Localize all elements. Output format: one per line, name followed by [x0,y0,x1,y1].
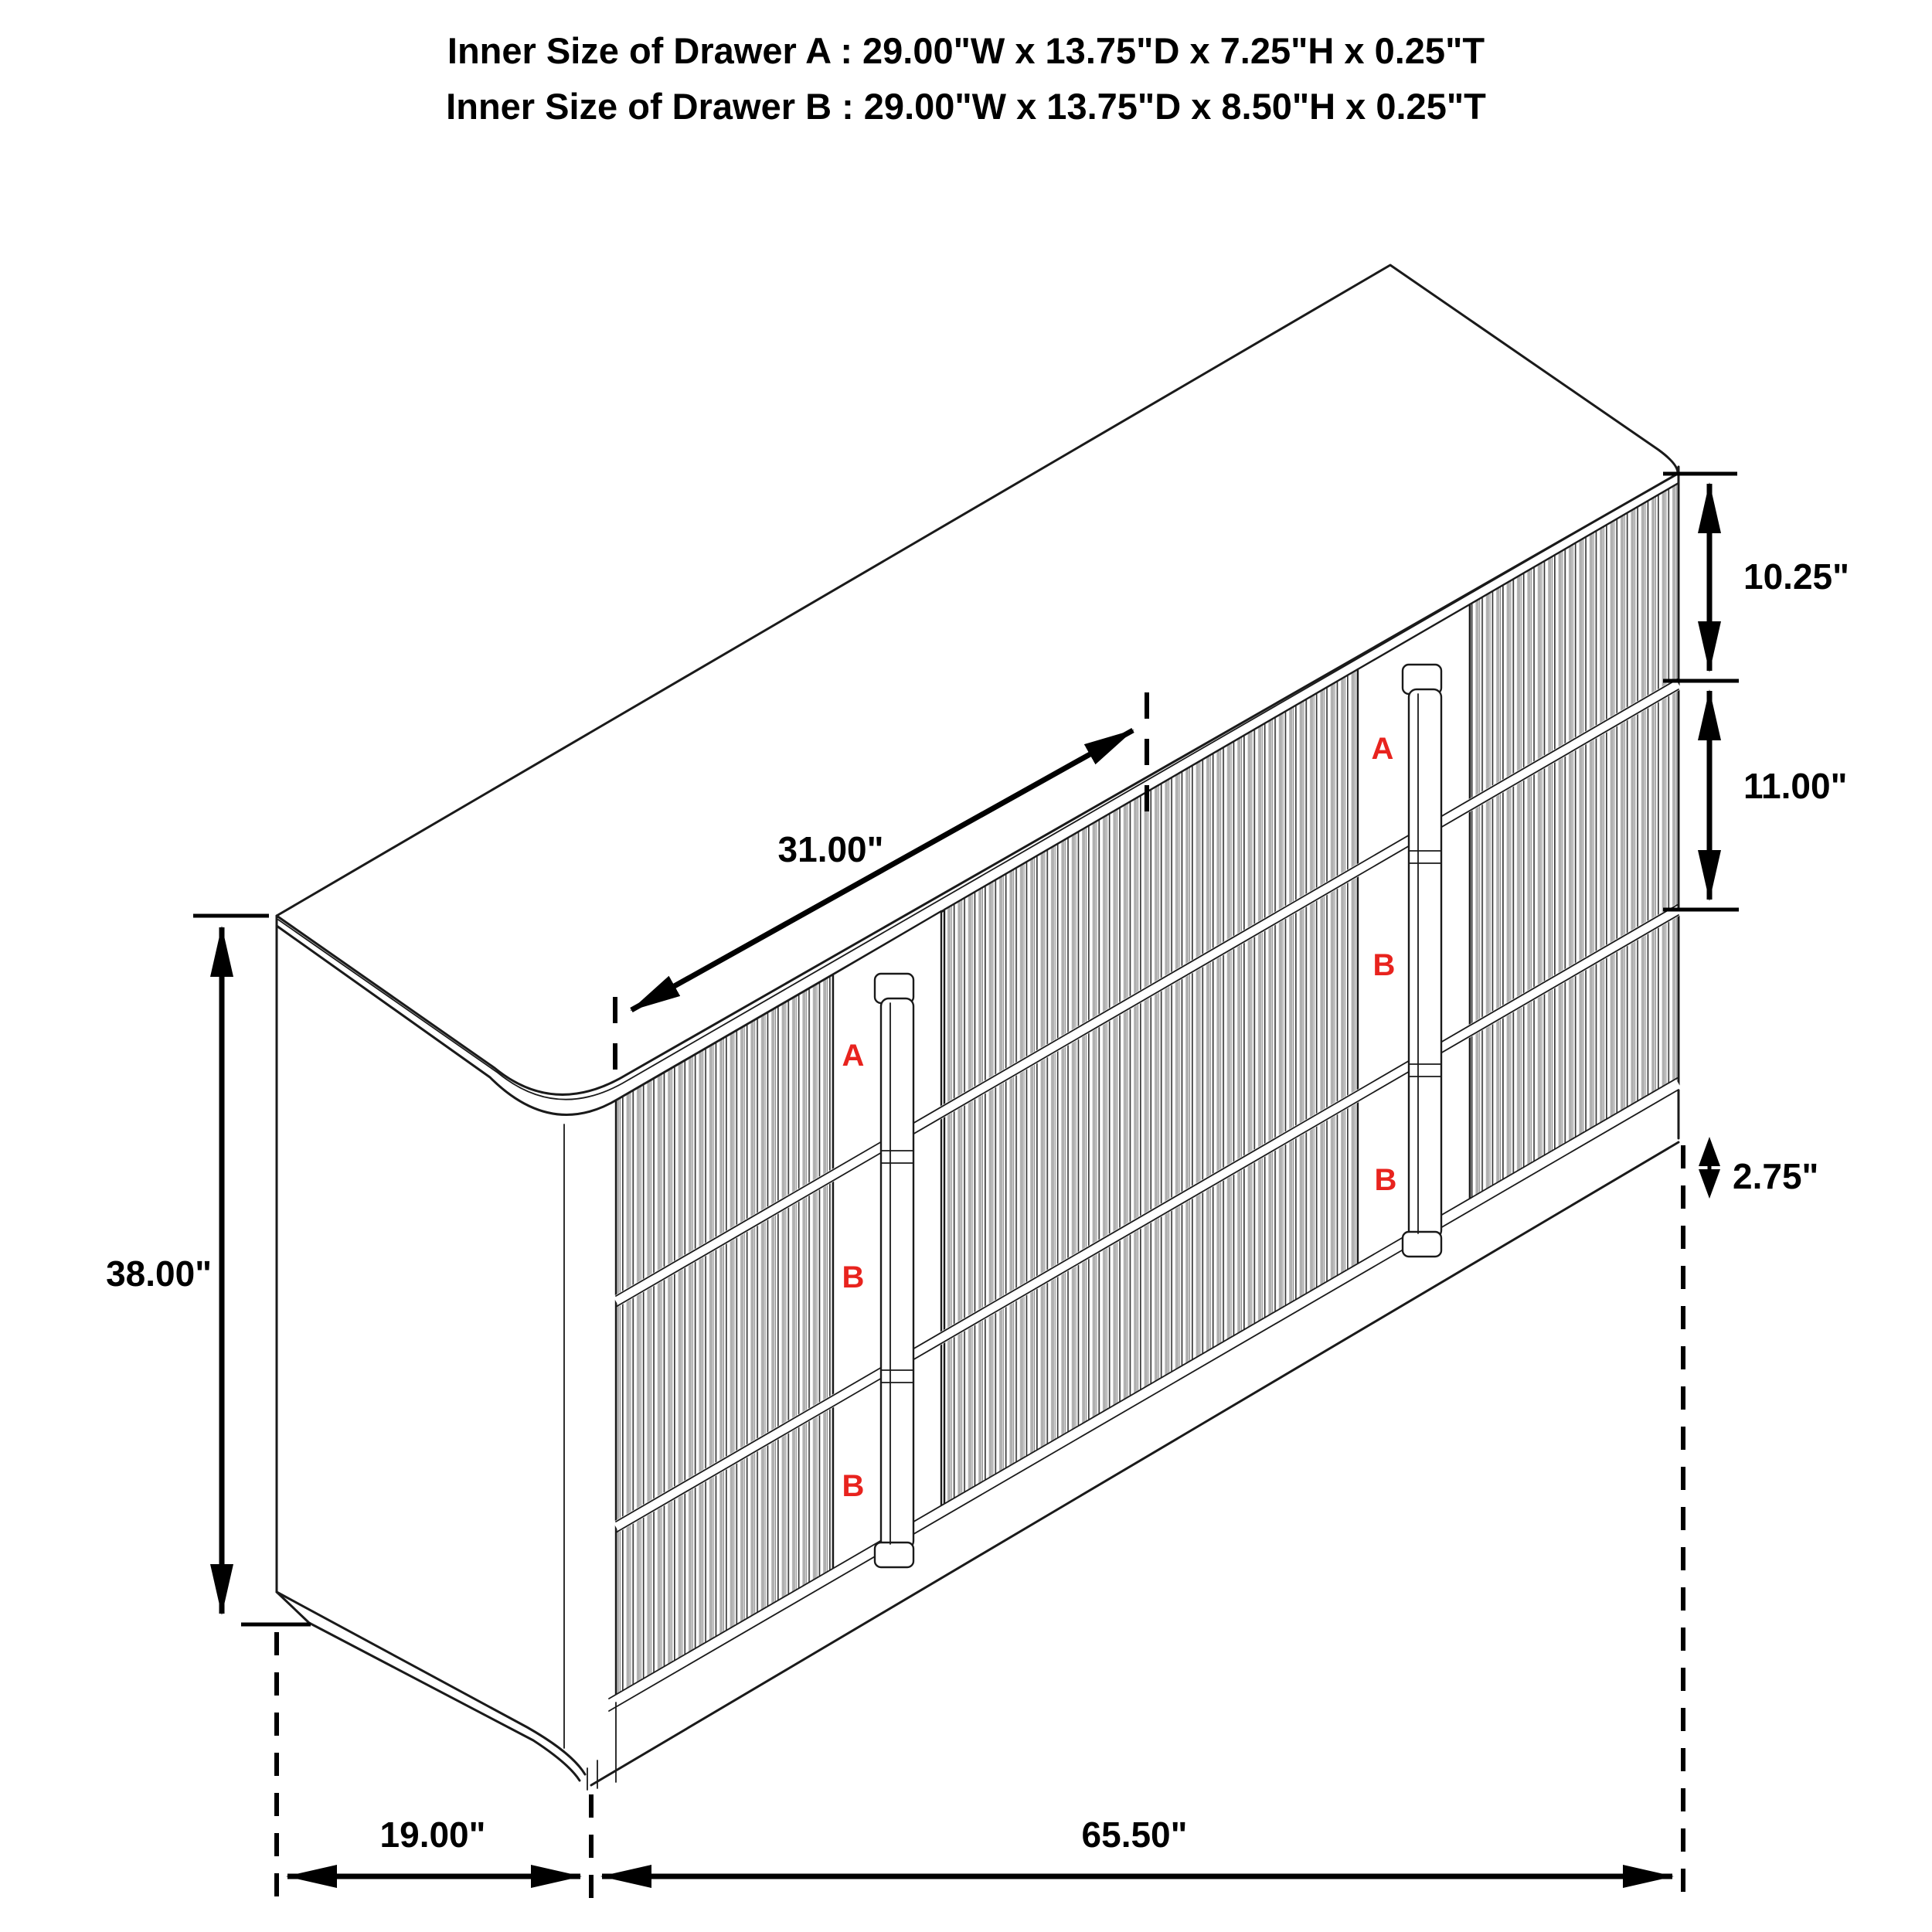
left-plinth-line [277,1592,580,1781]
top-width-value: 31.00" [778,829,884,869]
depth-value: 19.00" [380,1815,486,1855]
dimension-overall-height: 38.00" [106,916,311,1624]
title-line-drawer-a: Inner Size of Drawer A : 29.00"W x 13.75… [447,30,1485,71]
dimension-upper-drawer: 10.25" [1663,474,1849,681]
dresser-drawing: A B B A B B [277,265,1679,1790]
overall-height-value: 38.00" [106,1253,212,1294]
left-bank-label-b2: B [842,1469,865,1503]
left-bank-label-b1: B [842,1260,865,1294]
left-face-bottom-edge [277,1592,585,1774]
left-bank-label-a: A [842,1039,865,1073]
middle-drawer-value: 11.00" [1743,766,1847,806]
title-annotation: Inner Size of Drawer A : 29.00"W x 13.75… [446,30,1486,127]
right-bank-label-a: A [1372,732,1394,766]
title-line-drawer-b: Inner Size of Drawer B : 29.00"W x 13.75… [446,86,1486,127]
handle-right [1403,665,1441,1257]
handle-left [875,974,913,1567]
right-bank-label-b1: B [1373,948,1396,982]
dresser-dimension-diagram: A B B A B B Inner Size of Drawer A : 29.… [0,0,1932,1932]
right-bank-label-b2: B [1375,1163,1397,1197]
upper-drawer-value: 10.25" [1743,556,1849,597]
dimension-base-height: 2.75" [1699,1137,1818,1199]
dimension-middle-drawer: 11.00" [1663,691,1847,910]
overall-width-value: 65.50" [1082,1815,1188,1855]
base-height-value: 2.75" [1733,1156,1818,1196]
